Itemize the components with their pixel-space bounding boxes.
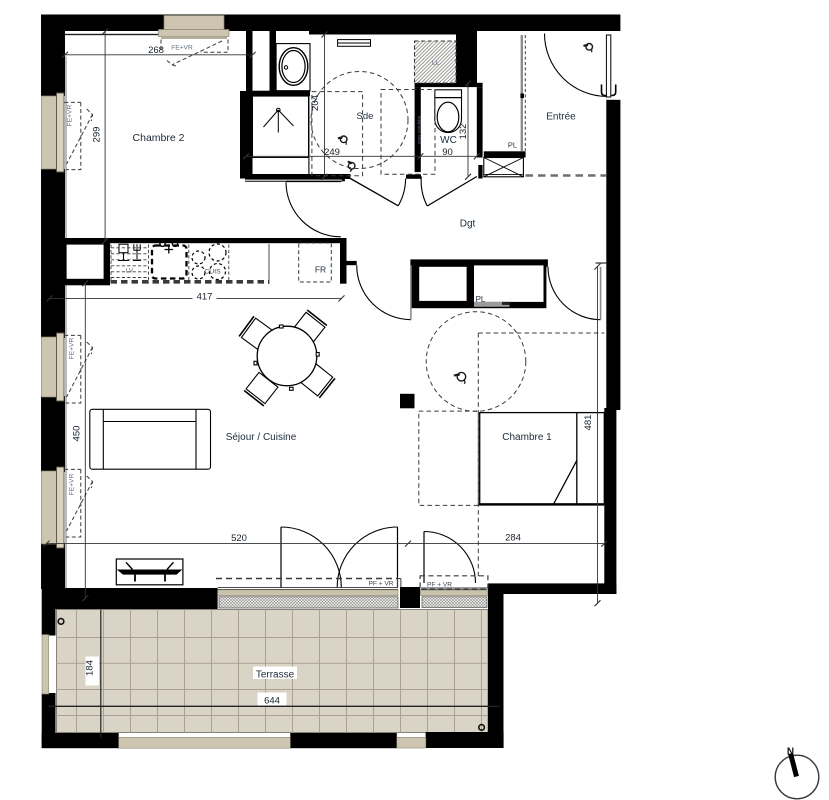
svg-text:PF + VR: PF + VR bbox=[368, 581, 393, 588]
svg-text:417: 417 bbox=[197, 292, 213, 303]
svg-text:Dgt: Dgt bbox=[460, 219, 476, 230]
svg-text:N: N bbox=[787, 747, 794, 758]
svg-text:FE+VR: FE+VR bbox=[69, 474, 76, 496]
svg-text:FE+VR: FE+VR bbox=[171, 45, 193, 52]
svg-text:Séjour / Cuisine: Séjour / Cuisine bbox=[226, 432, 297, 443]
svg-text:450: 450 bbox=[72, 426, 83, 442]
svg-text:LV: LV bbox=[126, 268, 134, 275]
svg-text:PF + VR: PF + VR bbox=[427, 582, 452, 589]
svg-text:sous conduite: sous conduite bbox=[417, 115, 422, 144]
svg-text:268: 268 bbox=[148, 45, 164, 56]
svg-text:644: 644 bbox=[264, 696, 280, 707]
svg-text:299: 299 bbox=[92, 127, 103, 143]
svg-text:204: 204 bbox=[310, 95, 321, 111]
svg-text:Entrée: Entrée bbox=[546, 112, 576, 123]
svg-text:LL: LL bbox=[432, 60, 440, 67]
svg-text:CUIS: CUIS bbox=[204, 269, 221, 276]
svg-text:132: 132 bbox=[458, 124, 469, 140]
svg-text:Chambre 1: Chambre 1 bbox=[502, 432, 552, 443]
svg-text:Terrasse: Terrasse bbox=[256, 670, 295, 681]
svg-text:284: 284 bbox=[505, 533, 521, 544]
svg-text:FE+VR: FE+VR bbox=[69, 338, 76, 360]
svg-text:FR: FR bbox=[315, 265, 326, 275]
svg-text:FE+VR: FE+VR bbox=[67, 105, 74, 127]
svg-text:90: 90 bbox=[442, 147, 453, 158]
svg-text:PL: PL bbox=[476, 295, 486, 304]
svg-text:520: 520 bbox=[231, 533, 247, 544]
svg-text:WC: WC bbox=[440, 135, 457, 146]
svg-text:184: 184 bbox=[85, 660, 96, 676]
svg-text:249: 249 bbox=[324, 147, 340, 158]
svg-text:Chambre 2: Chambre 2 bbox=[133, 132, 185, 144]
svg-text:Sde: Sde bbox=[357, 111, 374, 122]
svg-text:PL: PL bbox=[508, 141, 517, 150]
svg-text:481: 481 bbox=[583, 415, 594, 431]
